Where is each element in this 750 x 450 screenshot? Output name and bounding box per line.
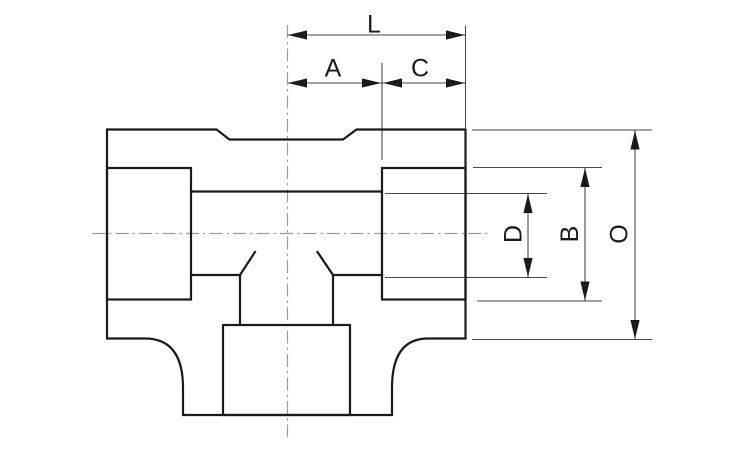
drawing-canvas: L A C D B O <box>0 0 750 450</box>
label-C: C <box>411 55 429 83</box>
label-L: L <box>367 11 381 39</box>
label-B: B <box>556 226 584 243</box>
label-A: A <box>325 55 342 83</box>
label-D: D <box>500 225 528 243</box>
tee-fitting-technical-drawing: L A C D B O <box>0 0 750 450</box>
label-O: O <box>606 224 634 243</box>
drawing-background <box>0 0 750 450</box>
